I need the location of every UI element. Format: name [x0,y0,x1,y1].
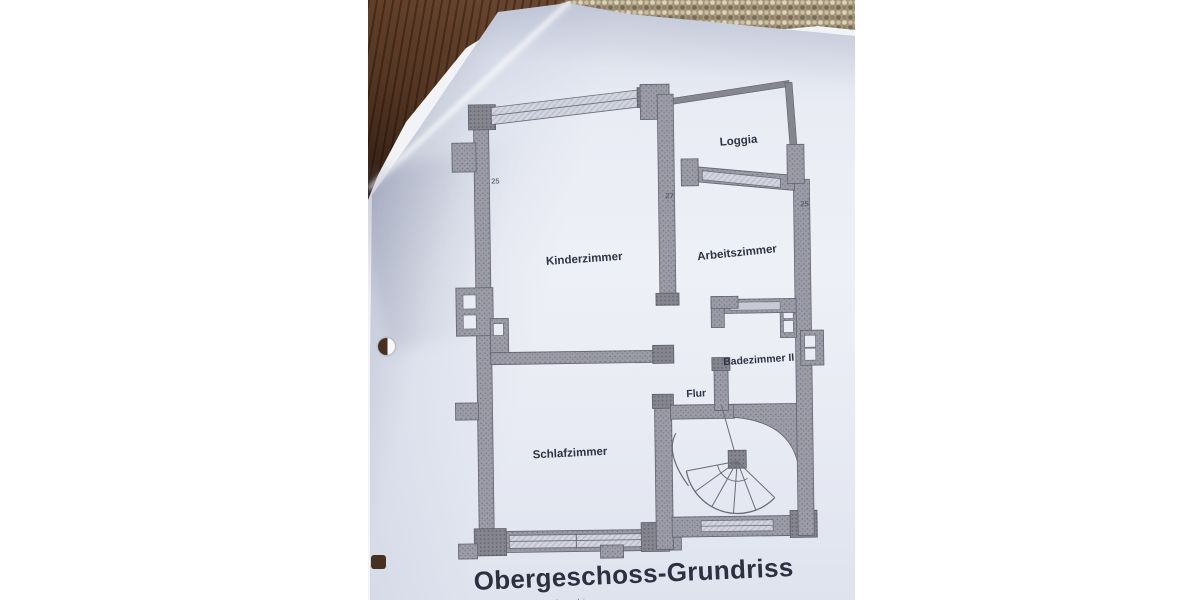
floorplan-title: Obergeschoss-Grundriss [473,552,794,596]
punch-hole-top [378,338,395,355]
room-label-loggia: Loggia [719,134,758,149]
walls-mid-divider [491,345,674,366]
room-label-flur: Flur [686,387,706,400]
floorplan-drawing: Loggia Kinderzimmer Arbeitszimmer Badezi… [368,0,855,600]
walls-kinderzimmer [451,84,682,554]
room-label-badezimmer: Badezimmer II [723,352,795,369]
room-label-schlafzimmer: Schlafzimmer [532,446,608,462]
white-margin-left [0,0,368,600]
room-label-arbeitszimmer: Arbeitszimmer [697,243,778,263]
photo-area: Loggia Kinderzimmer Arbeitszimmer Badezi… [368,0,855,600]
wall-annotation-1: 25 [491,177,499,186]
room-label-kinderzimmer: Kinderzimmer [546,251,624,268]
white-margin-right [855,0,1200,600]
wall-annotation-2: 27 [665,191,673,200]
punch-hole-bottom [371,555,386,569]
wall-annotation-3: 25 [800,199,808,208]
screenshot: Loggia Kinderzimmer Arbeitszimmer Badezi… [0,0,1200,600]
